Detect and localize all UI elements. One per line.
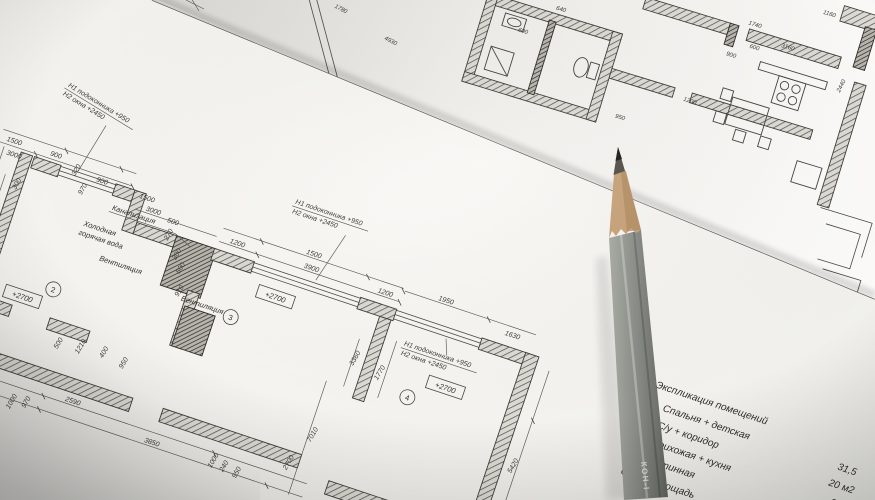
blueprint-photo: 1780 4930 640 600 950 1200 1160 3160 600… xyxy=(0,0,875,500)
corner-shade xyxy=(0,300,260,500)
photo-canvas: 1780 4930 640 600 950 1200 1160 3160 600… xyxy=(0,0,875,500)
